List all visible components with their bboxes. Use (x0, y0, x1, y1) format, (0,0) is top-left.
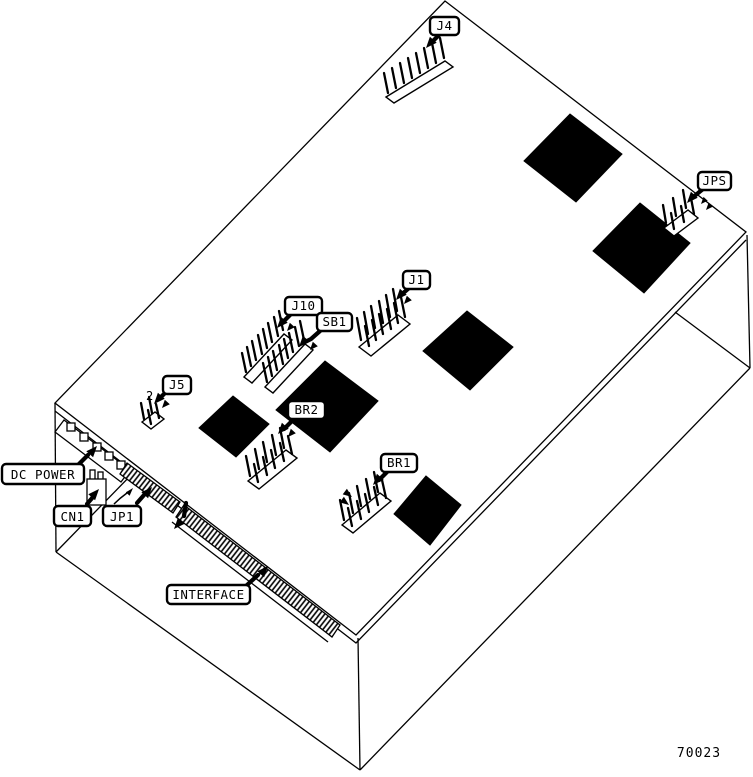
callout-jps: JPS (687, 172, 731, 203)
j5-pin2-annotation: 2 (146, 389, 153, 403)
br2-label: BR2 (294, 402, 318, 417)
j4-label: J4 (436, 18, 452, 33)
j1-label: J1 (408, 272, 424, 287)
j5-label: J5 (169, 377, 185, 392)
callout-jp1: JP1 (103, 487, 152, 526)
interface-pin1-arrow-tail (184, 503, 186, 516)
jp1-thin-arrow-tail (114, 493, 127, 504)
jps-label: JPS (702, 173, 726, 188)
dc-power-leader (79, 455, 88, 464)
dc-power-label: DC POWER (11, 467, 75, 482)
chassis-top-right-edge (675, 312, 750, 368)
figure-part-number: 70023 (677, 746, 721, 761)
br1-label: BR1 (387, 455, 411, 470)
jp1-thin-arrowhead-icon (126, 488, 133, 496)
interface-label: INTERFACE (172, 587, 244, 602)
dc-power-terminal (80, 433, 88, 441)
jp1-leader (137, 495, 144, 503)
jp1-label: JP1 (110, 509, 134, 524)
chassis-right-vertical-edge (747, 235, 750, 368)
cn1-label: CN1 (60, 509, 84, 524)
chassis-front-vertical-edge (358, 638, 360, 770)
callout-cn1: CN1 (54, 489, 99, 526)
circuit-board-diagram: J4 JPS J1 J10 SB1 J5 2 (0, 0, 753, 777)
j10-label: J10 (291, 298, 315, 313)
dc-power-terminal (67, 423, 75, 431)
sb1-label: SB1 (322, 314, 346, 329)
dc-power-terminal (105, 452, 113, 460)
